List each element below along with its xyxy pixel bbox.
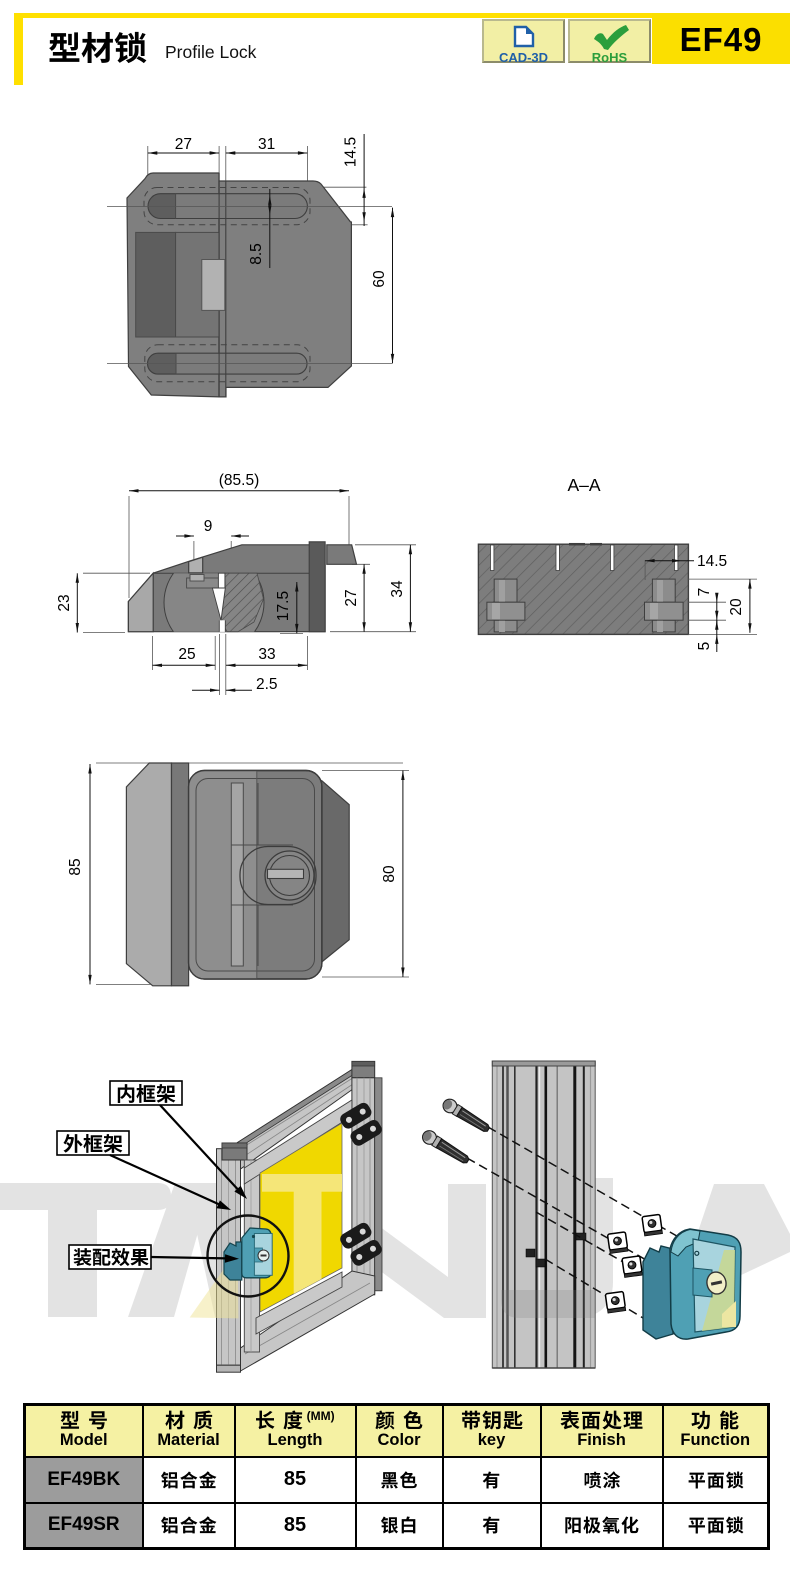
svg-text:A–A: A–A [567, 475, 600, 495]
svg-text:27: 27 [343, 589, 360, 606]
svg-text:5: 5 [696, 642, 713, 651]
svg-text:14.5: 14.5 [697, 553, 727, 570]
svg-text:23: 23 [56, 594, 73, 611]
svg-text:80: 80 [381, 865, 398, 883]
svg-text:14.5: 14.5 [343, 137, 360, 167]
svg-text:17.5: 17.5 [275, 591, 292, 621]
svg-text:2.5: 2.5 [256, 676, 278, 693]
svg-text:25: 25 [178, 646, 195, 663]
svg-text:8.5: 8.5 [248, 243, 265, 265]
svg-text:33: 33 [258, 646, 275, 663]
svg-text:7: 7 [696, 588, 713, 597]
svg-text:31: 31 [258, 136, 275, 153]
svg-text:27: 27 [175, 136, 192, 153]
svg-text:9: 9 [204, 518, 213, 535]
svg-text:60: 60 [371, 270, 388, 288]
svg-text:85: 85 [67, 858, 84, 875]
svg-text:(85.5): (85.5) [219, 472, 260, 489]
svg-text:34: 34 [389, 580, 406, 598]
svg-text:20: 20 [728, 598, 745, 616]
